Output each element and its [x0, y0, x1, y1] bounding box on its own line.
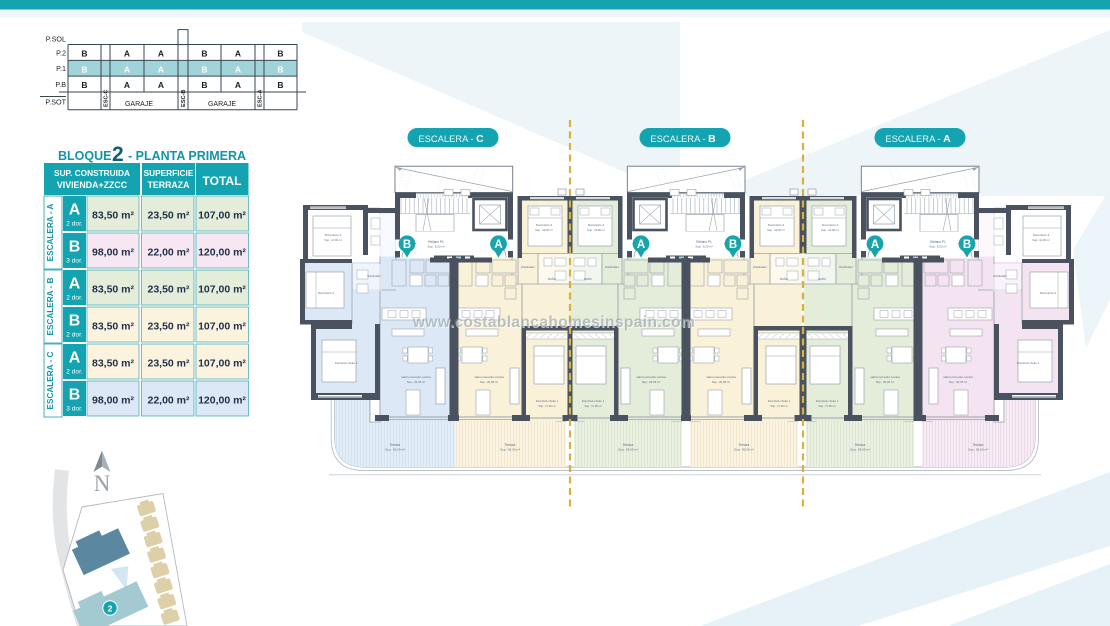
- svg-text:Sup.: 8,20 m²: Sup.: 8,20 m²: [427, 245, 444, 249]
- svg-text:A: A: [235, 64, 241, 74]
- svg-text:Sup.: 10,00 m²: Sup.: 10,00 m²: [535, 228, 553, 232]
- svg-text:Dormitorio 2: Dormitorio 2: [768, 223, 785, 227]
- svg-text:Terraza: Terraza: [623, 443, 634, 447]
- svg-text:107,00 m²: 107,00 m²: [198, 321, 246, 333]
- svg-text:salón-comedor-cocina: salón-comedor-cocina: [474, 375, 504, 379]
- svg-text:Sup.: 17,00 m²: Sup.: 17,00 m²: [584, 404, 601, 408]
- svg-text:Dormitorio 3: Dormitorio 3: [325, 233, 342, 237]
- svg-text:A: A: [871, 239, 879, 251]
- svg-text:3 dor.: 3 dor.: [66, 406, 83, 413]
- svg-text:Sup.: 26,45 m²: Sup.: 26,45 m²: [407, 380, 425, 384]
- svg-text:Terraza: Terraza: [973, 443, 984, 447]
- svg-text:N: N: [94, 471, 111, 496]
- svg-text:Dormitorio 2: Dormitorio 2: [1040, 291, 1057, 295]
- svg-text:Sup.: 10,00 m²: Sup.: 10,00 m²: [767, 228, 785, 232]
- svg-text:B: B: [277, 64, 283, 74]
- svg-text:A: A: [494, 239, 502, 251]
- svg-text:Distribuidor: Distribuidor: [521, 265, 535, 269]
- svg-text:Sup.: 26,05 m²: Sup.: 26,05 m²: [876, 380, 894, 384]
- svg-text:salón-comedor-cocina: salón-comedor-cocina: [401, 375, 431, 379]
- svg-text:2 dor.: 2 dor.: [66, 332, 83, 339]
- svg-text:83,50 m²: 83,50 m²: [92, 321, 135, 333]
- svg-text:ESC-B: ESC-B: [181, 90, 187, 107]
- svg-text:3 dor.: 3 dor.: [66, 258, 83, 265]
- svg-text:Dormitorio Suite 1: Dormitorio Suite 1: [582, 399, 605, 403]
- svg-text:120,00 m²: 120,00 m²: [198, 395, 246, 407]
- svg-text:107,00 m²: 107,00 m²: [198, 358, 246, 370]
- svg-text:B: B: [69, 313, 81, 330]
- svg-text:107,00 m²: 107,00 m²: [198, 284, 246, 296]
- svg-text:98,00 m²: 98,00 m²: [92, 395, 135, 407]
- svg-text:22,00 m²: 22,00 m²: [147, 247, 190, 259]
- svg-text:Distribuidor: Distribuidor: [839, 265, 853, 269]
- svg-text:B: B: [963, 239, 971, 251]
- svg-text:P.SOT: P.SOT: [45, 98, 66, 107]
- svg-text:B: B: [729, 239, 737, 251]
- svg-text:Terraza: Terraza: [855, 443, 866, 447]
- svg-text:SUP. CONSTRUIDA: SUP. CONSTRUIDA: [54, 168, 130, 178]
- svg-text:Sup.: 26,05 m²: Sup.: 26,05 m²: [480, 380, 498, 384]
- svg-text:A: A: [158, 64, 164, 74]
- svg-text:Dormitorio Suite 1: Dormitorio Suite 1: [768, 399, 791, 403]
- svg-text:ESCALERA - C: ESCALERA - C: [418, 133, 484, 145]
- svg-text:Sup.: 56,00 m²: Sup.: 56,00 m²: [968, 448, 988, 452]
- svg-text:Terraza: Terraza: [505, 443, 516, 447]
- svg-text:ESCALERA - A: ESCALERA - A: [885, 133, 951, 145]
- svg-text:Sup.: 56,00 m²: Sup.: 56,00 m²: [734, 448, 754, 452]
- svg-text:Sup.: 26,45 m²: Sup.: 26,45 m²: [949, 380, 967, 384]
- svg-text:VIVIENDA+ZZCC: VIVIENDA+ZZCC: [57, 180, 128, 190]
- svg-text:salón-comedor-cocina: salón-comedor-cocina: [943, 375, 973, 379]
- svg-text:120,00 m²: 120,00 m²: [198, 247, 246, 259]
- svg-text:TERRAZA: TERRAZA: [147, 180, 190, 190]
- svg-text:Sup.: 17,00 m²: Sup.: 17,00 m²: [818, 404, 835, 408]
- svg-text:A: A: [124, 64, 130, 74]
- svg-text:2: 2: [112, 143, 124, 166]
- svg-text:2 dor.: 2 dor.: [66, 221, 83, 228]
- svg-text:B: B: [277, 49, 283, 59]
- svg-text:B: B: [201, 64, 207, 74]
- svg-text:Sup.: 8,20 m²: Sup.: 8,20 m²: [929, 245, 946, 249]
- svg-text:Sup.: 56,00 m²: Sup.: 56,00 m²: [385, 448, 405, 452]
- svg-text:2: 2: [108, 604, 113, 614]
- svg-text:Sup.: 17,00 m²: Sup.: 17,00 m²: [538, 404, 555, 408]
- svg-text:98,00 m²: 98,00 m²: [92, 247, 135, 259]
- svg-text:Distribuidor: Distribuidor: [993, 274, 1007, 278]
- svg-text:Terraza: Terraza: [739, 443, 750, 447]
- svg-text:ESC-A: ESC-A: [258, 90, 264, 107]
- svg-text:Dormitorio 2: Dormitorio 2: [588, 223, 605, 227]
- svg-text:Distribuidor: Distribuidor: [367, 274, 381, 278]
- svg-text:ESCALERA - C: ESCALERA - C: [46, 351, 55, 409]
- svg-text:salón-comedor-cocina: salón-comedor-cocina: [870, 375, 900, 379]
- svg-text:A: A: [124, 49, 130, 59]
- svg-text:Dormitorio Suite 1: Dormitorio Suite 1: [1017, 361, 1040, 365]
- svg-text:A: A: [637, 239, 645, 251]
- svg-text:Dormitorio 2: Dormitorio 2: [536, 223, 553, 227]
- svg-text:Dormitorio 3: Dormitorio 3: [1033, 233, 1050, 237]
- svg-text:Sup.: 10,00 m²: Sup.: 10,00 m²: [587, 228, 605, 232]
- svg-text:B: B: [403, 239, 411, 251]
- svg-text:A: A: [124, 80, 130, 90]
- svg-text:P.SOL: P.SOL: [46, 35, 66, 44]
- svg-text:BLOQUE: BLOQUE: [58, 149, 111, 163]
- svg-text:GARAJE: GARAJE: [208, 101, 236, 108]
- svg-text:Distribuidor: Distribuidor: [605, 265, 619, 269]
- svg-text:B: B: [81, 80, 87, 90]
- svg-text:salón-comedor-cocina: salón-comedor-cocina: [636, 375, 666, 379]
- svg-text:Distribuidor: Distribuidor: [753, 265, 767, 269]
- svg-text:23,50 m²: 23,50 m²: [147, 358, 190, 370]
- svg-text:P.2: P.2: [56, 49, 66, 58]
- svg-text:A: A: [235, 49, 241, 59]
- svg-text:2 dor.: 2 dor.: [66, 295, 83, 302]
- svg-text:A: A: [69, 202, 81, 219]
- svg-text:Sup.: 17,00 m²: Sup.: 17,00 m²: [770, 404, 787, 408]
- svg-text:B: B: [277, 80, 283, 90]
- svg-text:83,50 m²: 83,50 m²: [92, 284, 135, 296]
- svg-text:B: B: [81, 49, 87, 59]
- svg-text:Sup.: 56,00 m²: Sup.: 56,00 m²: [500, 448, 520, 452]
- svg-text:ESCALERA - B: ESCALERA - B: [650, 133, 716, 145]
- svg-text:B: B: [69, 387, 81, 404]
- svg-text:Dormitorio Suite 1: Dormitorio Suite 1: [816, 399, 839, 403]
- svg-text:23,50 m²: 23,50 m²: [147, 321, 190, 333]
- svg-text:A: A: [69, 350, 81, 367]
- svg-text:A: A: [158, 80, 164, 90]
- svg-text:B: B: [201, 49, 207, 59]
- svg-text:Rellano P1: Rellano P1: [930, 240, 946, 244]
- svg-text:A: A: [158, 49, 164, 59]
- svg-text:Rellano P1: Rellano P1: [696, 240, 712, 244]
- svg-text:22,00 m²: 22,00 m²: [147, 395, 190, 407]
- svg-text:Sup.: 10,00 m²: Sup.: 10,00 m²: [821, 228, 839, 232]
- svg-text:Sup.: 11,00 m²: Sup.: 11,00 m²: [1032, 238, 1050, 242]
- svg-text:Sup.: 26,05 m²: Sup.: 26,05 m²: [712, 380, 730, 384]
- svg-text:Terraza: Terraza: [390, 443, 401, 447]
- svg-text:salón-comedor-cocina: salón-comedor-cocina: [706, 375, 736, 379]
- svg-text:GARAJE: GARAJE: [125, 101, 153, 108]
- svg-text:ESCALERA - A: ESCALERA - A: [46, 204, 55, 262]
- svg-text:Dormitorio 2: Dormitorio 2: [822, 223, 839, 227]
- svg-text:83,50 m²: 83,50 m²: [92, 210, 135, 222]
- svg-text:TOTAL: TOTAL: [203, 174, 242, 188]
- svg-text:Dormitorio Suite 1: Dormitorio Suite 1: [335, 361, 358, 365]
- svg-text:Sup.: 56,00 m²: Sup.: 56,00 m²: [618, 448, 638, 452]
- svg-text:B: B: [81, 64, 87, 74]
- svg-text:A: A: [69, 276, 81, 293]
- svg-text:107,00 m²: 107,00 m²: [198, 210, 246, 222]
- svg-text:ESCALERA - B: ESCALERA - B: [46, 277, 55, 335]
- svg-text:B: B: [69, 239, 81, 256]
- svg-text:Sup.: 11,00 m²: Sup.: 11,00 m²: [324, 238, 342, 242]
- svg-text:- PLANTA PRIMERA: - PLANTA PRIMERA: [128, 149, 246, 163]
- svg-text:Sup.: 26,05 m²: Sup.: 26,05 m²: [642, 380, 660, 384]
- svg-text:Sup.: 8,20 m²: Sup.: 8,20 m²: [695, 245, 712, 249]
- svg-text:www.costablancahomesinspain.co: www.costablancahomesinspain.com: [412, 314, 695, 331]
- svg-text:2 dor.: 2 dor.: [66, 369, 83, 376]
- svg-text:23,50 m²: 23,50 m²: [147, 284, 190, 296]
- svg-text:Sup.: 56,00 m²: Sup.: 56,00 m²: [850, 448, 870, 452]
- svg-text:A: A: [235, 80, 241, 90]
- svg-text:83,50 m²: 83,50 m²: [92, 358, 135, 370]
- svg-text:SUPERFICIE: SUPERFICIE: [144, 168, 194, 178]
- svg-text:23,50 m²: 23,50 m²: [147, 210, 190, 222]
- svg-text:P.B: P.B: [55, 80, 66, 89]
- svg-text:B: B: [201, 80, 207, 90]
- svg-text:Dormitorio 2: Dormitorio 2: [318, 291, 335, 295]
- svg-text:Rellano P1: Rellano P1: [428, 240, 444, 244]
- svg-text:P.1: P.1: [56, 64, 66, 73]
- svg-text:Dormitorio Suite 1: Dormitorio Suite 1: [536, 399, 559, 403]
- svg-text:ESC-C: ESC-C: [104, 90, 110, 107]
